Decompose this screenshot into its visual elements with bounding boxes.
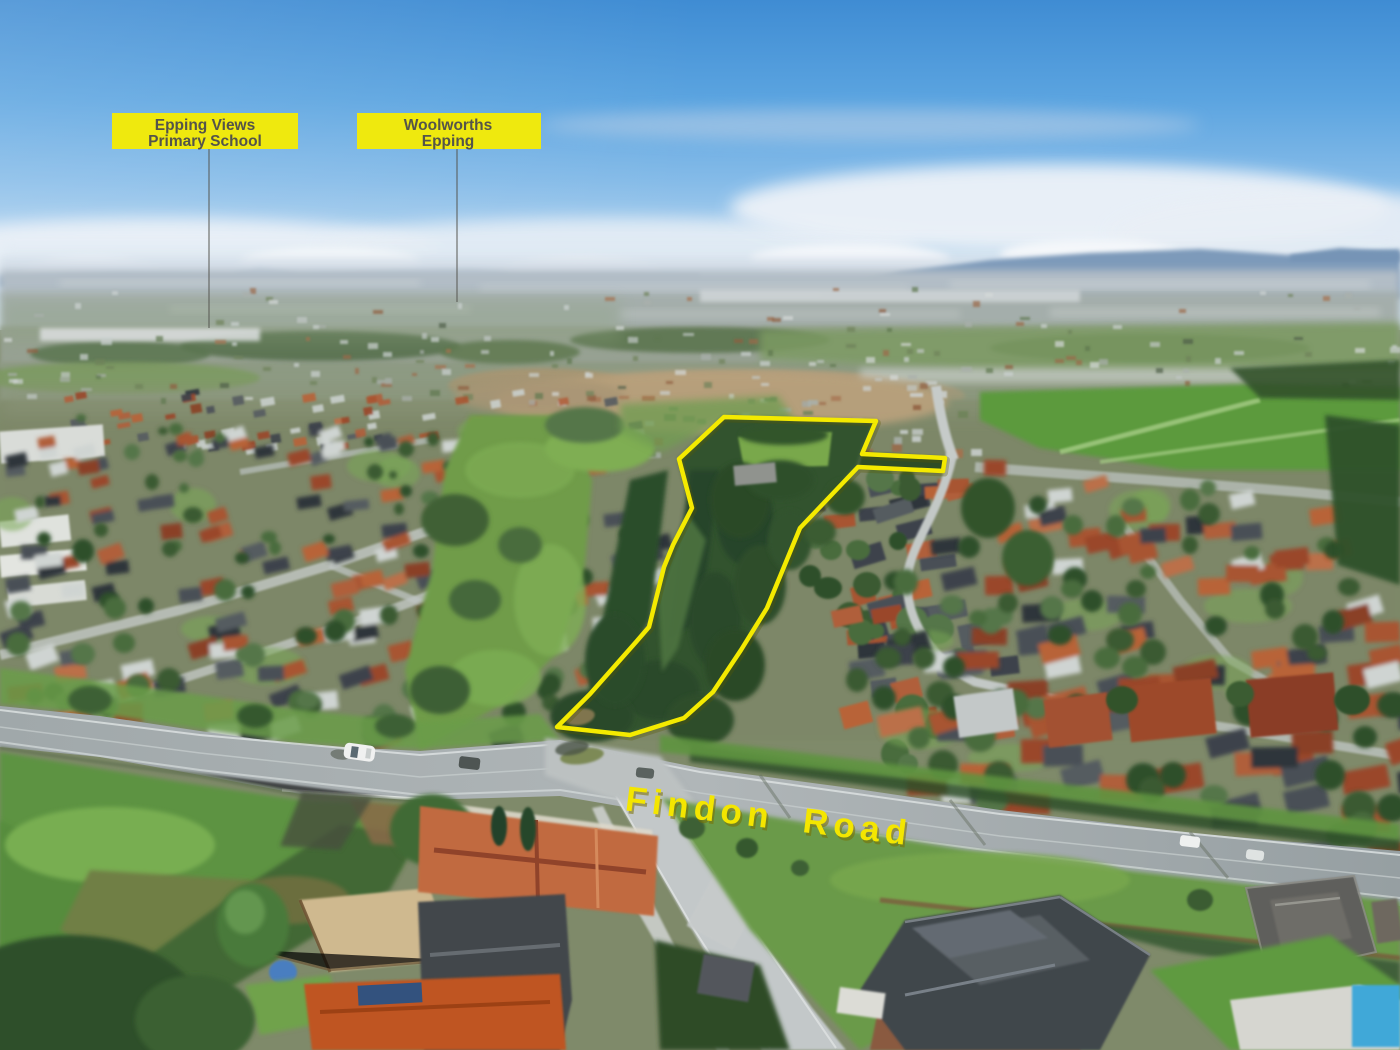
svg-text:Woolworths: Woolworths: [404, 117, 492, 134]
svg-text:Primary School: Primary School: [148, 133, 262, 150]
svg-text:Epping: Epping: [422, 133, 475, 150]
svg-text:Epping Views: Epping Views: [155, 117, 256, 134]
